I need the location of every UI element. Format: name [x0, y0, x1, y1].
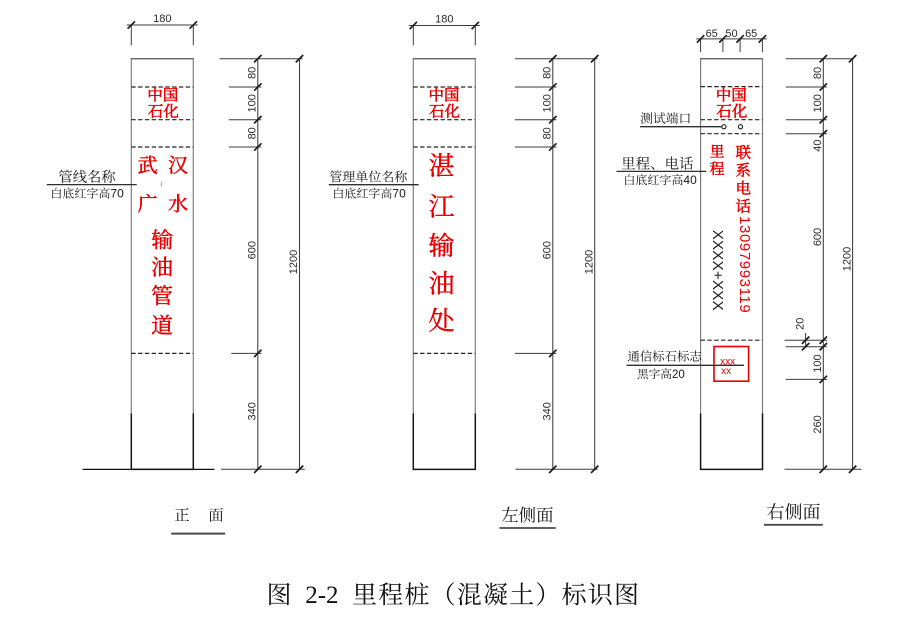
- svg-text:100: 100: [812, 354, 824, 372]
- svg-text:600: 600: [812, 228, 824, 246]
- svg-text:80: 80: [541, 127, 553, 139]
- svg-text:20: 20: [672, 369, 685, 381]
- svg-text:600: 600: [246, 241, 258, 259]
- svg-text:xx: xx: [721, 366, 731, 377]
- svg-text:1200: 1200: [583, 250, 595, 274]
- svg-text:340: 340: [541, 402, 553, 420]
- svg-text:70: 70: [392, 187, 406, 201]
- svg-text:260: 260: [812, 415, 824, 433]
- svg-text:100: 100: [246, 94, 258, 112]
- svg-text:340: 340: [246, 402, 258, 420]
- svg-text:100: 100: [541, 94, 553, 112]
- svg-text:13097993119: 13097993119: [736, 216, 753, 313]
- svg-text:40: 40: [683, 173, 697, 187]
- svg-text:1200: 1200: [288, 250, 300, 274]
- svg-text:40: 40: [812, 139, 824, 151]
- svg-text:65: 65: [706, 28, 718, 40]
- svg-text:180: 180: [435, 14, 453, 26]
- svg-text:1200: 1200: [841, 247, 853, 271]
- svg-text:20: 20: [794, 318, 806, 330]
- svg-text:2-2: 2-2: [305, 582, 338, 609]
- svg-text:80: 80: [541, 67, 553, 79]
- svg-text:70: 70: [110, 187, 124, 201]
- svg-text:65: 65: [745, 28, 757, 40]
- svg-text:180: 180: [153, 13, 171, 25]
- svg-text:100: 100: [812, 94, 824, 112]
- svg-text:80: 80: [812, 67, 824, 79]
- svg-text:50: 50: [725, 28, 737, 40]
- svg-text:600: 600: [541, 241, 553, 259]
- svg-text:XXXX+XXX: XXXX+XXX: [709, 230, 726, 311]
- svg-text:80: 80: [246, 127, 258, 139]
- svg-text:80: 80: [246, 67, 258, 79]
